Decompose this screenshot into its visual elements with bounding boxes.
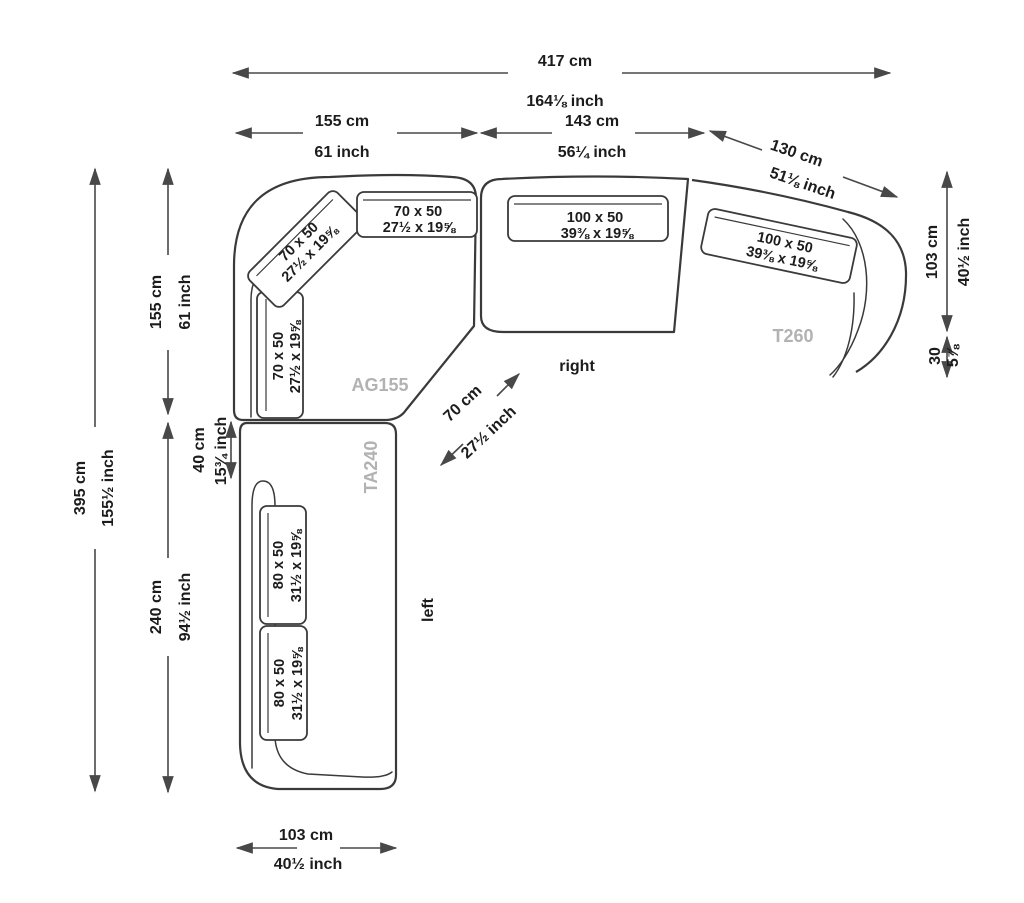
dim-left-offset-inch: 15¾ inch <box>213 417 230 485</box>
dim-right-arm-inch: 5⅞ <box>945 343 962 367</box>
dim-bottom-depth: 103 cm 40½ inch <box>237 827 396 873</box>
sofa-diagram: 70 x 50 27½ x 19⅝ 70 x 50 27½ x 19⅝ 70 x… <box>0 0 1024 903</box>
dim-bottom-depth-inch: 40½ inch <box>274 856 342 873</box>
dim-total-width: 417 cm 164⅛ inch <box>233 53 890 110</box>
dim-corner-segment-cm: 155 cm <box>315 113 369 130</box>
dim-chaise-length-cm: 240 cm <box>148 580 165 634</box>
dim-right-depth-inch: 40½ inch <box>956 218 973 286</box>
dim-seat-width-inch: 27½ inch <box>458 403 520 462</box>
dim-total-width-inch: 164⅛ inch <box>526 93 603 110</box>
dim-right-segment-cm: 143 cm <box>565 113 619 130</box>
cushion-80x50-upper-label-inch: 31½ x 19⅝ <box>289 529 305 602</box>
orientation-label-right: right <box>559 358 595 375</box>
dim-corner-height-cm: 155 cm <box>148 275 165 329</box>
dim-right-segment-inch: 56¼ inch <box>558 144 626 161</box>
dim-total-width-cm: 417 cm <box>538 53 592 70</box>
cushion-70x50-top-label-inch: 27½ x 19⅝ <box>383 220 456 236</box>
dim-chaise-length-inch: 94½ inch <box>177 573 194 641</box>
dim-right-arm-cm: 30 <box>927 347 944 365</box>
cushion-80x50-lower: 80 x 50 31½ x 19⅝ <box>260 626 307 740</box>
module-label-ag155: AG155 <box>351 375 408 395</box>
cushion-100x50-right: 100 x 50 39⅜ x 19⅝ <box>508 196 668 242</box>
dim-chaise-length: 240 cm 94½ inch <box>148 423 194 792</box>
dim-left-offset: 40 cm 15¾ inch <box>191 417 231 485</box>
sofa-dimension-diagram-page: 70 x 50 27½ x 19⅝ 70 x 50 27½ x 19⅝ 70 x… <box>0 0 1024 903</box>
cushion-80x50-lower-label-inch: 31½ x 19⅝ <box>290 647 306 720</box>
dim-corner-height-inch: 61 inch <box>177 274 194 329</box>
dim-right-depth: 103 cm 40½ inch <box>924 172 973 331</box>
cushion-100x50-right-label-inch: 39⅜ x 19⅝ <box>561 226 634 242</box>
dim-seat-width: 70 cm 27½ inch <box>441 374 520 465</box>
dim-total-height: 395 cm 155½ inch <box>72 169 117 791</box>
dim-right-depth-cm: 103 cm <box>924 225 941 279</box>
orientation-label-left: left <box>420 597 437 622</box>
cushion-70x50-left: 70 x 50 27½ x 19⅝ <box>257 292 304 418</box>
module-label-ta240: TA240 <box>361 441 381 494</box>
dim-seat-width-arrow-up <box>497 374 519 396</box>
module-label-t260: T260 <box>772 326 813 346</box>
cushion-80x50-upper: 80 x 50 31½ x 19⅝ <box>260 506 306 624</box>
dim-seat-width-cm: 70 cm <box>441 382 486 425</box>
dim-end-segment-line-right <box>843 177 897 197</box>
cushion-70x50-left-label-inch: 27½ x 19⅝ <box>288 320 304 393</box>
cushion-80x50-lower-label-cm: 80 x 50 <box>272 659 288 707</box>
dim-right-segment: 143 cm 56¼ inch <box>481 113 704 161</box>
dim-corner-height: 155 cm 61 inch <box>148 169 194 414</box>
cushion-70x50-top-label-cm: 70 x 50 <box>394 204 442 220</box>
dim-total-height-inch: 155½ inch <box>100 449 117 526</box>
dim-corner-segment-inch: 61 inch <box>314 144 369 161</box>
dim-left-offset-cm: 40 cm <box>191 427 208 472</box>
dim-total-height-cm: 395 cm <box>72 461 89 515</box>
cushion-80x50-upper-label-cm: 80 x 50 <box>271 541 287 589</box>
dim-end-segment-line-left <box>710 131 762 150</box>
cushion-70x50-top: 70 x 50 27½ x 19⅝ <box>357 192 477 237</box>
dim-corner-segment: 155 cm 61 inch <box>236 113 477 161</box>
cushion-100x50-right-label-cm: 100 x 50 <box>567 210 623 226</box>
cushion-70x50-left-label-cm: 70 x 50 <box>271 332 287 380</box>
dim-bottom-depth-cm: 103 cm <box>279 827 333 844</box>
section-end-t260 <box>692 180 906 377</box>
dim-right-arm: 30 5⅞ <box>927 337 962 377</box>
